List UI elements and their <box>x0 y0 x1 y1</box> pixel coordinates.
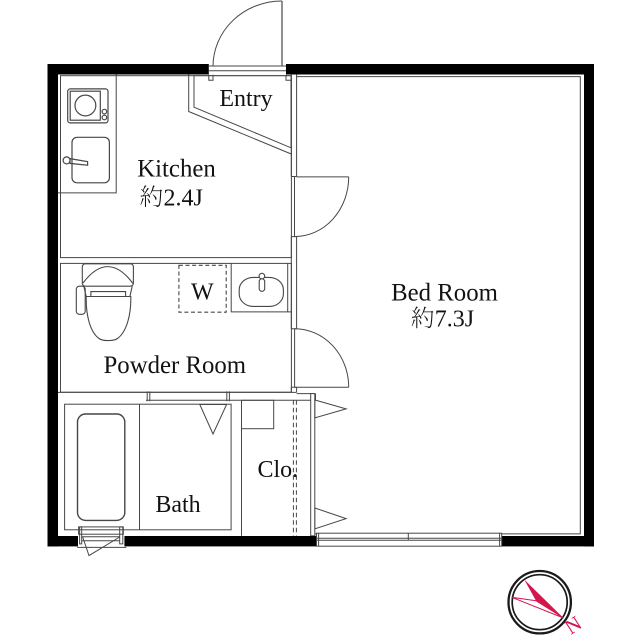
svg-text:Kitchen: Kitchen <box>137 155 216 182</box>
svg-text:Entry: Entry <box>219 86 272 112</box>
svg-text:2.4J: 2.4J <box>164 185 203 211</box>
svg-text:7.3J: 7.3J <box>435 307 474 333</box>
svg-text:Bath: Bath <box>155 492 200 518</box>
svg-text:Bed Room: Bed Room <box>391 280 498 307</box>
svg-text:W: W <box>191 280 214 306</box>
svg-text:Powder Room: Powder Room <box>104 352 247 379</box>
svg-text:Clo.: Clo. <box>257 457 298 483</box>
